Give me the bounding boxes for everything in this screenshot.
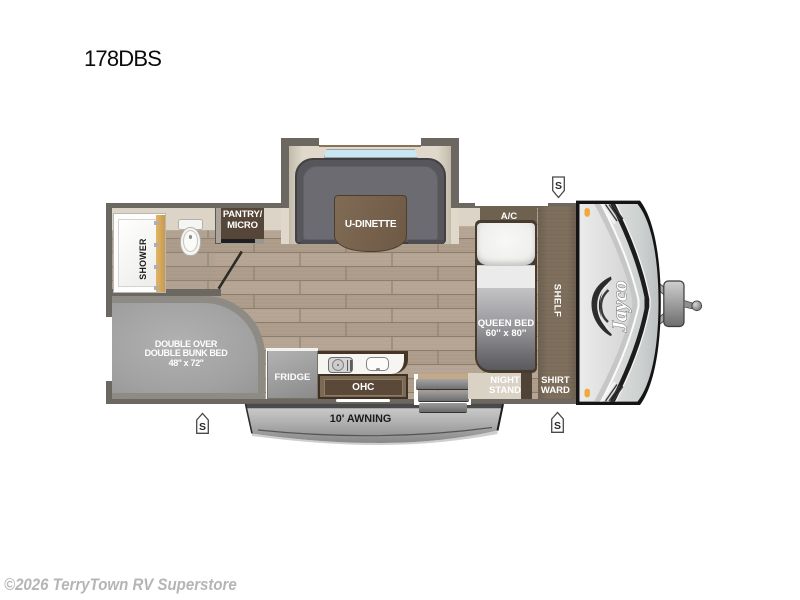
svg-text:Jayco: Jayco bbox=[608, 280, 632, 333]
svg-text:S: S bbox=[555, 180, 562, 192]
svg-text:S: S bbox=[554, 420, 561, 432]
svg-text:S: S bbox=[199, 421, 206, 433]
